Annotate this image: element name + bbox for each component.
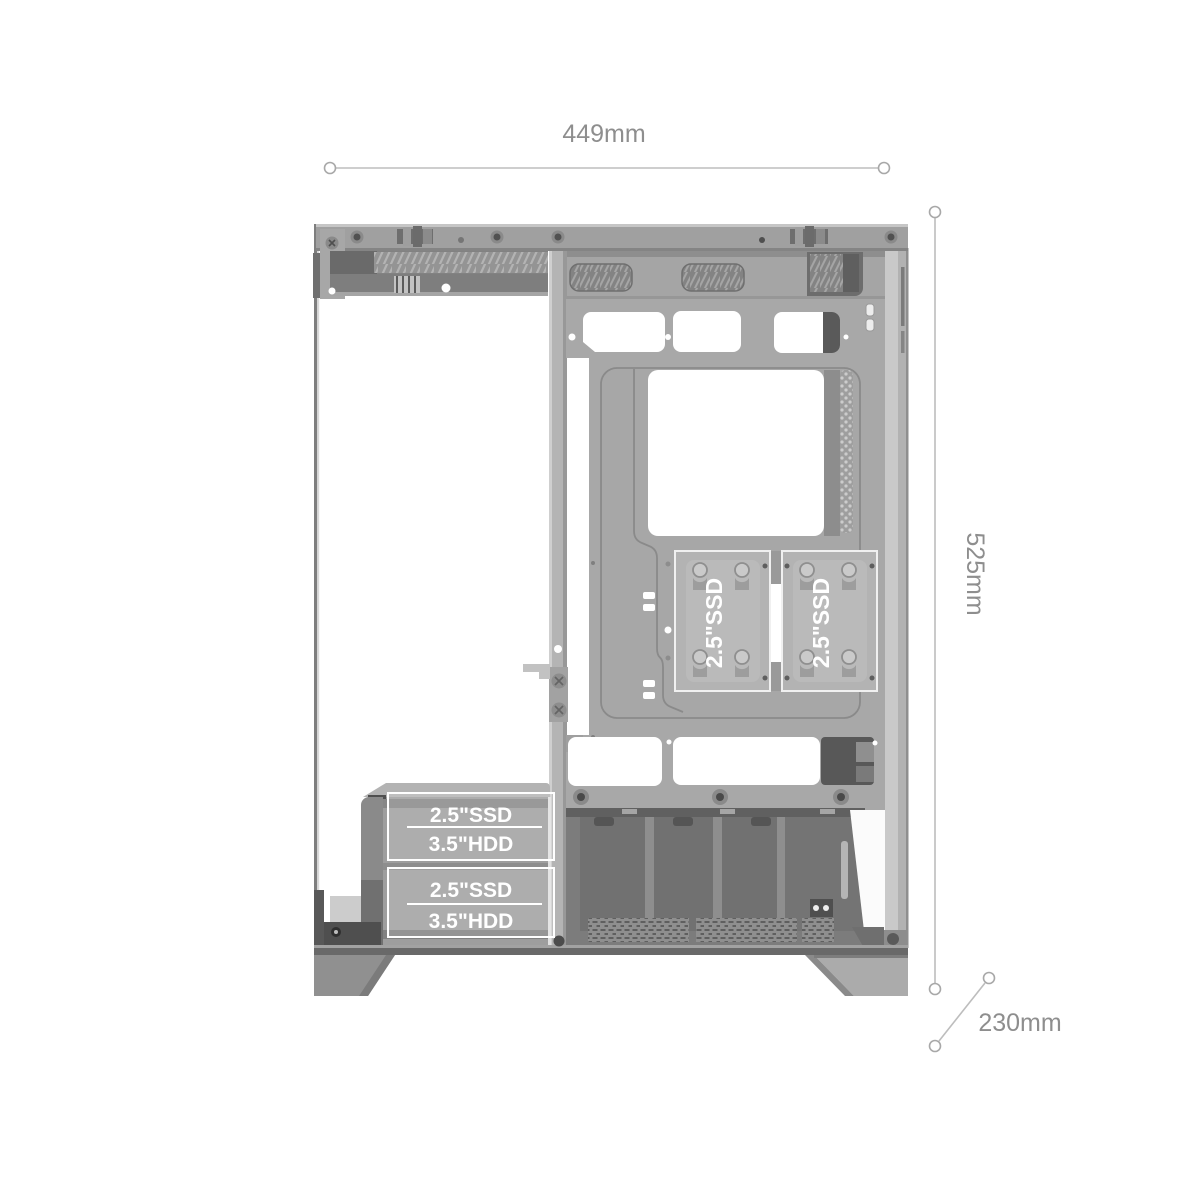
svg-text:525mm: 525mm [961,532,989,615]
svg-text:2.5"SSD: 2.5"SSD [430,804,512,827]
svg-text:230mm: 230mm [978,1009,1061,1037]
svg-text:2.5"SSD: 2.5"SSD [701,578,727,668]
svg-text:2.5"SSD: 2.5"SSD [430,879,512,902]
svg-text:3.5"HDD: 3.5"HDD [429,833,514,856]
svg-text:2.5"SSD: 2.5"SSD [808,578,834,668]
svg-text:3.5"HDD: 3.5"HDD [429,910,514,933]
svg-text:449mm: 449mm [562,120,645,148]
